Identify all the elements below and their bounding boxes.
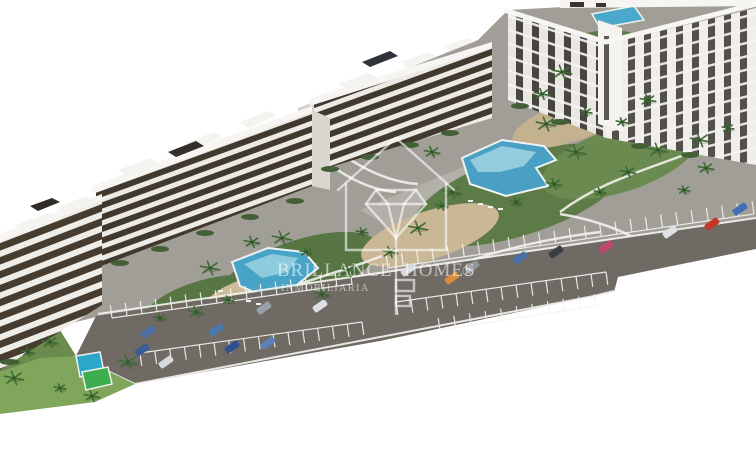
watermark-tagline: INMOBILIARIA <box>281 283 369 294</box>
roof-pergola <box>362 51 398 67</box>
property-aerial-render: BRILLANCE HOMES ® INMOBILIARIA <box>0 0 756 456</box>
render-scene: BRILLANCE HOMES ® INMOBILIARIA <box>0 0 756 456</box>
roof-pergola <box>30 198 60 211</box>
watermark-brand-left: BRILLANCE <box>277 260 393 281</box>
watermark-registered-symbol: ® <box>462 263 474 280</box>
